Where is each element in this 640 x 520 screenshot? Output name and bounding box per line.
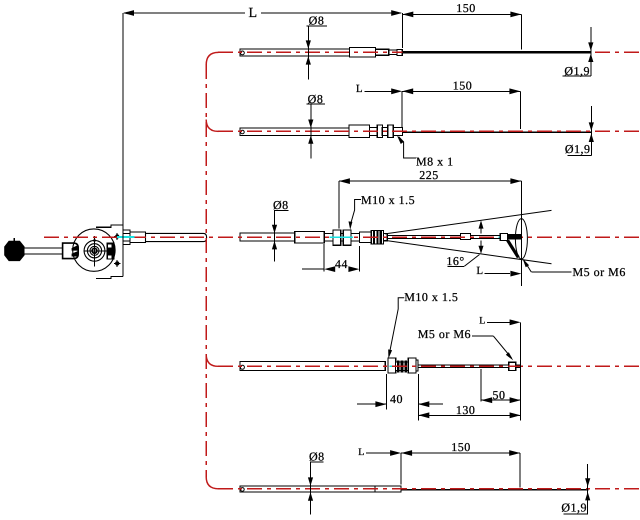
svg-text:M10 x 1.5: M10 x 1.5 — [404, 290, 458, 304]
svg-text:L: L — [476, 265, 483, 277]
svg-text:150: 150 — [451, 440, 471, 454]
svg-text:L: L — [479, 315, 486, 326]
svg-text:L: L — [248, 6, 257, 21]
svg-text:M5 or M6: M5 or M6 — [418, 327, 471, 341]
svg-text:40: 40 — [390, 392, 403, 406]
svg-text:M8 x 1: M8 x 1 — [416, 155, 454, 169]
svg-text:L: L — [358, 447, 365, 458]
svg-text:M10 x 1.5: M10 x 1.5 — [361, 193, 415, 207]
svg-text:L: L — [356, 83, 363, 95]
svg-text:150: 150 — [453, 79, 473, 93]
svg-text:Ø1,9: Ø1,9 — [561, 500, 587, 514]
svg-text:225: 225 — [419, 168, 439, 182]
svg-text:Ø1,9: Ø1,9 — [565, 142, 591, 156]
svg-text:Ø8: Ø8 — [273, 198, 289, 212]
svg-text:M5 or M6: M5 or M6 — [573, 265, 626, 279]
svg-text:44: 44 — [335, 257, 348, 271]
svg-text:50: 50 — [493, 388, 506, 402]
svg-text:130: 130 — [456, 403, 476, 417]
svg-text:150: 150 — [456, 1, 476, 15]
